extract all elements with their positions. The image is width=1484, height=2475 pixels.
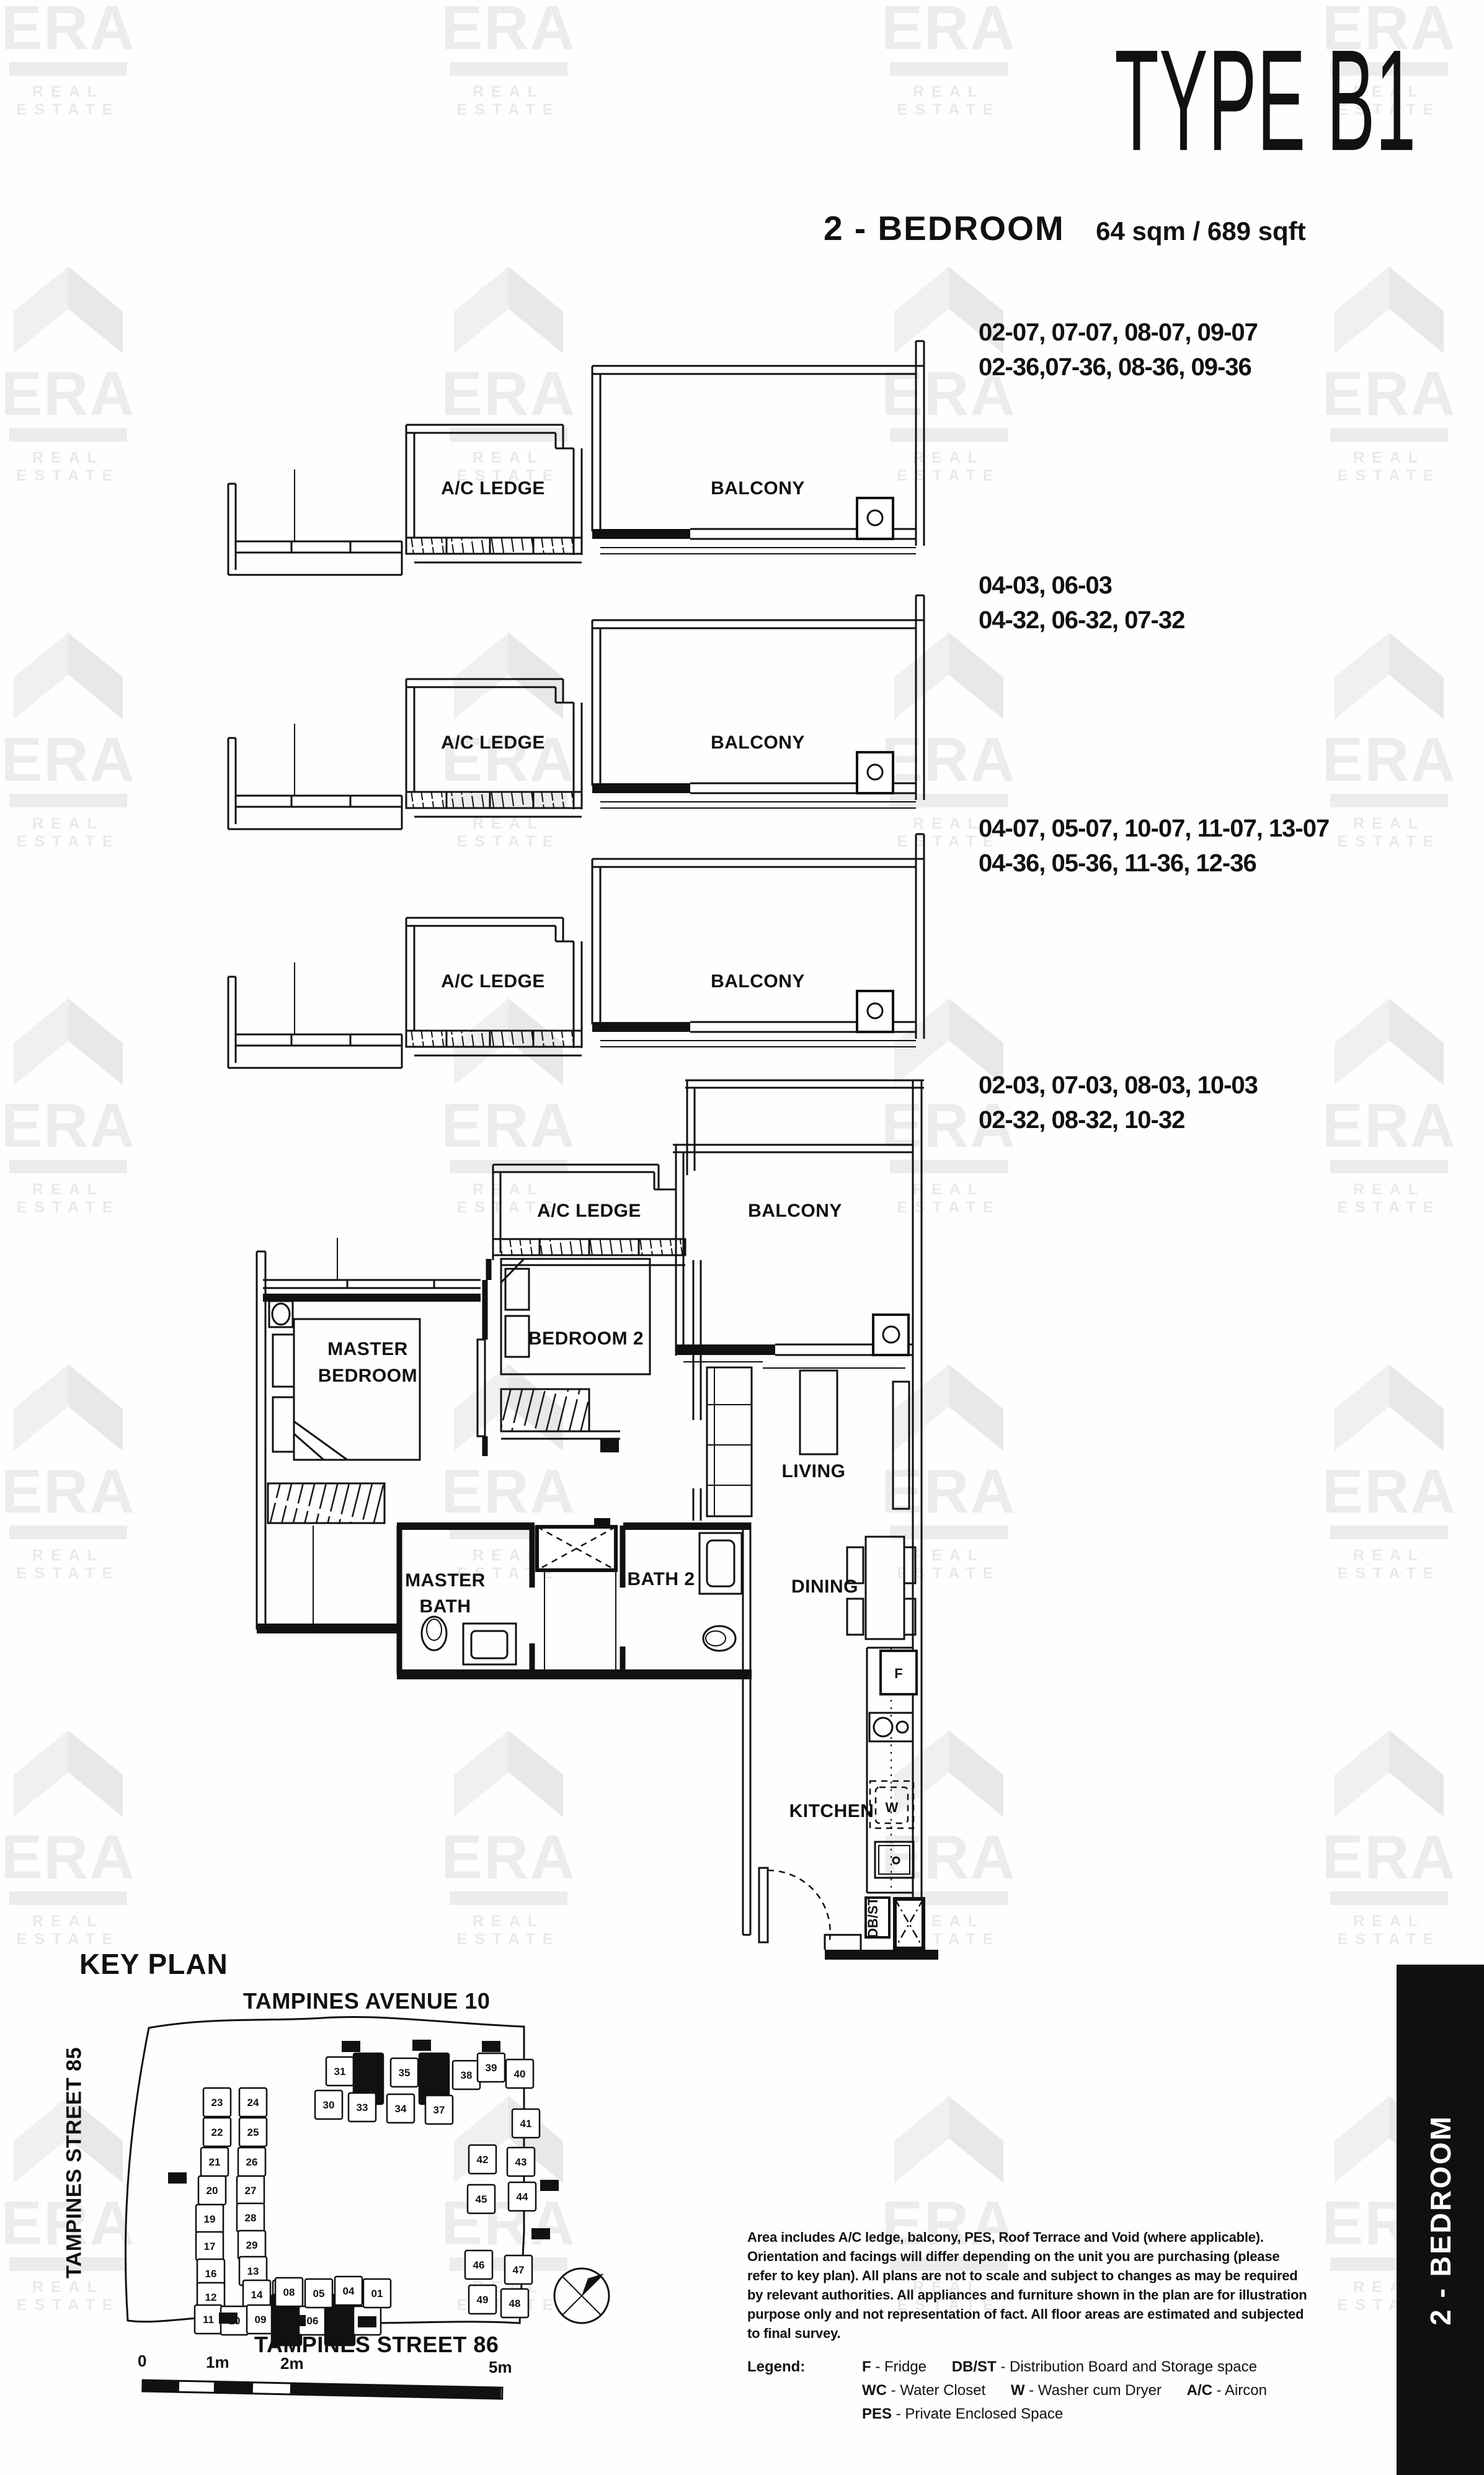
balcony-label: BALCONY	[711, 478, 805, 499]
stack-plan-1: A/C LEDGE BALCONY	[217, 332, 930, 586]
era-watermark-icon: ERAREAL ESTATE	[0, 626, 161, 851]
master-bath-label-1: MASTER	[405, 1570, 486, 1591]
keyplan-marker	[168, 2172, 187, 2184]
keyplan-block-number: 17	[204, 2241, 216, 2252]
bath2-label: BATH 2	[627, 1569, 695, 1589]
main-floor-plan: A/C LEDGE BALCONY MASTER BEDROOM	[242, 1076, 940, 1972]
ac-ledge-label: A/C LEDGE	[441, 971, 545, 992]
era-watermark-icon: ERAREAL ESTATE	[1296, 992, 1482, 1217]
keyplan-block-number: 24	[247, 2097, 259, 2108]
keyplan-block-number: 11	[203, 2314, 214, 2326]
scale-2m: 2m	[280, 2354, 304, 2373]
keyplan-block-number: 06	[307, 2315, 319, 2327]
unit-list-2: 04-03, 06-0304-32, 06-32, 07-32	[979, 568, 1184, 638]
scale-bar	[143, 2380, 502, 2399]
keyplan-title: KEY PLAN	[79, 1947, 228, 1981]
keyplan-block-number: 22	[211, 2126, 223, 2138]
unit-list-1: 02-07, 07-07, 08-07, 09-0702-36,07-36, 0…	[979, 315, 1258, 384]
keyplan-block-number: 14	[251, 2289, 263, 2301]
dbst-label: DB/ST	[865, 1896, 881, 1938]
balcony-label: BALCONY	[711, 971, 805, 992]
keyplan-block-number: 21	[209, 2156, 221, 2168]
ac-ledge-label: A/C LEDGE	[441, 732, 545, 753]
keyplan-marker	[219, 2313, 238, 2324]
balcony-label: BALCONY	[711, 732, 805, 753]
keyplan-marker	[482, 2041, 500, 2052]
keyplan-block-number: 43	[515, 2156, 527, 2168]
stack-plan-drawing: A/C LEDGE BALCONY	[217, 586, 930, 840]
stack-plan-3: A/C LEDGE BALCONY	[217, 825, 930, 1079]
keyplan-block-number: 05	[313, 2288, 325, 2299]
keyplan-block-number: 27	[245, 2185, 257, 2197]
era-watermark-icon: ERAREAL ESTATE	[1296, 260, 1482, 485]
bedroom2-label: BEDROOM 2	[528, 1328, 644, 1349]
compass-icon	[554, 2268, 609, 2323]
disclaimer-text: Area includes A/C ledge, balcony, PES, R…	[747, 2228, 1307, 2343]
keyplan-marker	[531, 2228, 550, 2239]
era-watermark-icon: ERAREAL ESTATE	[415, 0, 602, 119]
keyplan-block-number: 31	[334, 2066, 346, 2077]
keyplan-block-number: 29	[246, 2239, 258, 2251]
keyplan-block-number: 26	[246, 2156, 258, 2168]
era-watermark-icon: ERAREAL ESTATE	[1296, 1358, 1482, 1583]
kitchen-label: KITCHEN	[789, 1801, 874, 1821]
keyplan-block-number: 12	[205, 2291, 217, 2303]
subtitle-row: 2 - BEDROOM 64 sqm / 689 sqft	[824, 208, 1306, 248]
keyplan-block-number: 39	[486, 2062, 497, 2074]
unit-list-4: 02-03, 07-03, 08-03, 10-0302-32, 08-32, …	[979, 1068, 1258, 1137]
keyplan-block-number: 09	[255, 2314, 267, 2326]
keyplan-block-number: 38	[461, 2069, 473, 2081]
balcony-label: BALCONY	[748, 1201, 842, 1221]
era-watermark-icon: ERAREAL ESTATE	[0, 992, 161, 1217]
keyplan-block-number: 42	[477, 2154, 489, 2166]
stack-plan-drawing: A/C LEDGE BALCONY	[217, 332, 930, 586]
unit-list-3: 04-07, 05-07, 10-07, 11-07, 13-0704-36, …	[979, 811, 1329, 881]
washer-label: W	[886, 1800, 899, 1815]
keyplan-block-number: 41	[520, 2118, 532, 2130]
keyplan-block-number: 44	[517, 2191, 528, 2203]
page-side-tab: 2 - BEDROOM	[1397, 1965, 1484, 2475]
fridge-label: F	[894, 1666, 902, 1681]
keyplan-marker	[540, 2180, 559, 2191]
keyplan-block-number: 25	[247, 2126, 259, 2138]
keyplan-block-number: 48	[509, 2298, 521, 2309]
master-bedroom-label-2: BEDROOM	[318, 1366, 417, 1386]
keyplan-block-number: 19	[204, 2213, 216, 2225]
keyplan-block-number: 34	[395, 2103, 407, 2115]
side-tab-label: 2 - BEDROOM	[1424, 2115, 1457, 2326]
keyplan-marker	[358, 2316, 376, 2327]
dining-label: DINING	[791, 1576, 858, 1597]
stack-plan-drawing: A/C LEDGE BALCONY	[217, 825, 930, 1079]
keyplan-block-number: 28	[245, 2212, 257, 2224]
ac-ledge-label: A/C LEDGE	[441, 478, 545, 499]
unit-type-label: 2 - BEDROOM	[824, 209, 1065, 247]
ac-ledge-label: A/C LEDGE	[537, 1201, 641, 1221]
keyplan-block-number: 08	[283, 2286, 295, 2298]
keyplan-block-number: 04	[343, 2285, 355, 2297]
keyplan-block-number: 01	[371, 2288, 383, 2299]
keyplan-block-number: 47	[513, 2264, 525, 2276]
keyplan-block-number: 46	[473, 2259, 485, 2271]
keyplan-block-number: 40	[514, 2068, 526, 2080]
master-bedroom-label-1: MASTER	[327, 1339, 408, 1359]
keyplan-street85-label: TAMPINES STREET 85	[63, 2030, 87, 2296]
living-label: LIVING	[781, 1461, 845, 1482]
keyplan-block-number: 33	[357, 2102, 368, 2113]
keyplan-block-number: 49	[477, 2294, 489, 2306]
era-watermark-icon: ERAREAL ESTATE	[0, 260, 161, 485]
keyplan-block-number: 13	[247, 2265, 259, 2277]
stack-plan-2: A/C LEDGE BALCONY	[217, 586, 930, 840]
keyplan-marker	[287, 2315, 306, 2326]
unit-area-label: 64 sqm / 689 sqft	[1096, 216, 1305, 246]
master-bath-label-2: BATH	[419, 1596, 471, 1617]
keyplan-marker	[342, 2041, 360, 2052]
era-watermark-icon: ERAREAL ESTATE	[856, 0, 1042, 119]
scale-1m: 1m	[206, 2353, 229, 2372]
keyplan-block-number: 37	[433, 2104, 445, 2116]
page-title: TYPE B1	[1029, 17, 1358, 191]
era-watermark-icon: ERAREAL ESTATE	[1296, 1724, 1482, 1948]
era-watermark-icon: ERAREAL ESTATE	[0, 0, 161, 119]
keyplan-block-number: 30	[323, 2099, 335, 2111]
main-floor-plan-drawing: A/C LEDGE BALCONY MASTER BEDROOM	[242, 1076, 940, 1972]
keyplan-block-number: 45	[476, 2193, 487, 2205]
keyplan-avenue-label: TAMPINES AVENUE 10	[243, 1988, 490, 2014]
keyplan-marker	[412, 2040, 431, 2051]
era-watermark-icon: ERAREAL ESTATE	[0, 1358, 161, 1583]
scale-5m: 5m	[489, 2358, 512, 2377]
floorplan-page: ERAREAL ESTATEERAREAL ESTATEERAREAL ESTA…	[0, 0, 1484, 2475]
keyplan-block-number: 35	[399, 2067, 411, 2079]
era-watermark-icon: ERAREAL ESTATE	[0, 1724, 161, 1948]
keyplan-block-number: 16	[205, 2268, 217, 2280]
keyplan-block-number: 23	[211, 2097, 223, 2108]
legend-label: Legend:	[747, 2355, 805, 2379]
keyplan-block-number: 20	[207, 2185, 218, 2197]
scale-0: 0	[138, 2352, 146, 2371]
